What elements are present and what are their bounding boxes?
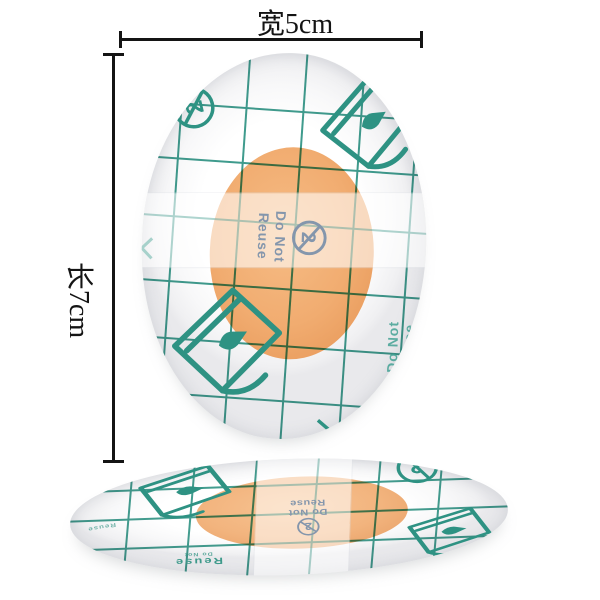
no-reuse-icon [171, 85, 217, 131]
length-dimension-tick-bottom [103, 460, 124, 463]
width-dimension-line [120, 38, 422, 41]
width-dimension-tick-left [119, 31, 122, 48]
reuse-text: Reuse [255, 212, 273, 260]
do-not-text: Do Not [384, 321, 402, 373]
do-not-reuse-label: Do Not Reuse [245, 190, 340, 285]
do-not-text: Do Not [271, 211, 289, 263]
do-not-text: Do Not [288, 507, 327, 518]
edge-print-label: Do Not Reuse [356, 316, 433, 379]
peel-corner-icon [408, 506, 491, 560]
product-photo: 宽5cm 长7cm [0, 0, 600, 600]
length-dimension-label: 长7cm [58, 240, 98, 360]
width-dimension-tick-right [420, 31, 423, 48]
peel-chevron-icon [317, 418, 358, 437]
dressing-front-view: Do Not Reuse Do Not Reuse [135, 48, 432, 444]
width-dimension-label: 宽5cm [240, 2, 350, 42]
no-reuse-icon [295, 516, 322, 537]
do-not-reuse-label: Do Not Reuse [275, 490, 341, 544]
length-dimension-line [112, 54, 115, 462]
reuse-text: Reuse [290, 497, 326, 508]
length-dimension-tick-top [103, 53, 124, 56]
reuse-text: Reuse [400, 324, 418, 372]
dressing-flat-view: Do Not Reuse Reuse Do Not Reuse [68, 451, 510, 582]
no-reuse-icon [289, 217, 330, 258]
edge-print-label: Reuse Do Not [155, 550, 241, 568]
